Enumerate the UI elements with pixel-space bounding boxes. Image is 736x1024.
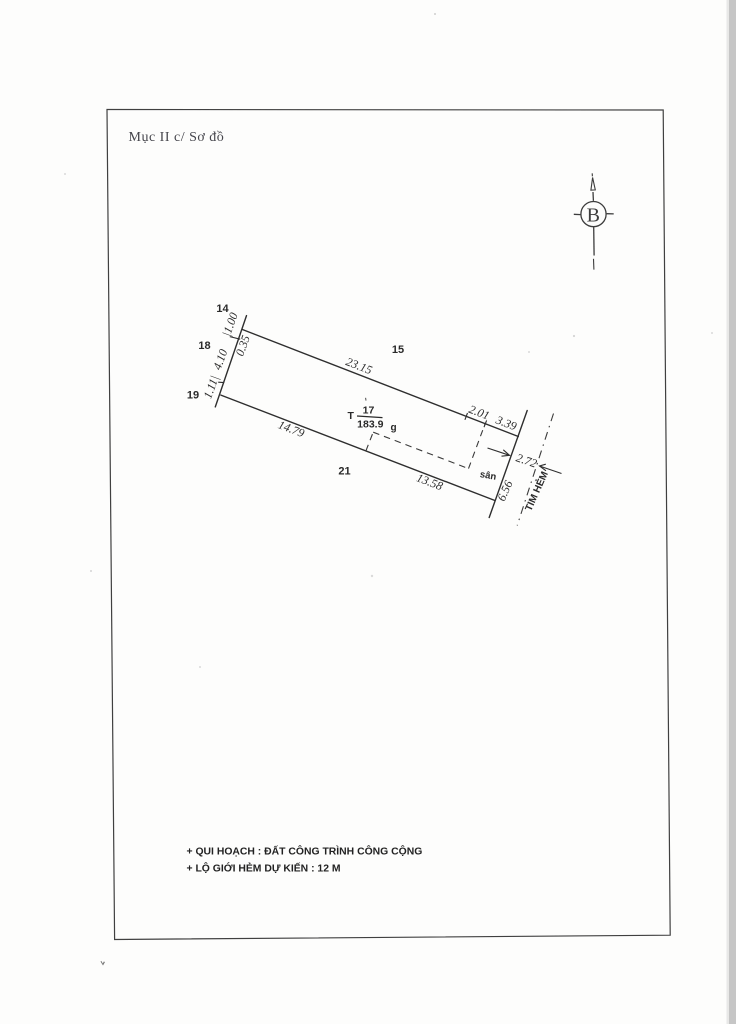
- svg-text:17: 17: [363, 405, 375, 417]
- svg-text:g: g: [391, 422, 397, 433]
- svg-text:B: B: [587, 205, 600, 227]
- svg-text:19: 19: [187, 389, 199, 401]
- svg-text:+ LỘ GIỚI HẺM DỰ KIẾN : 12 M: + LỘ GIỚI HẺM DỰ KIẾN : 12 M: [187, 862, 341, 875]
- svg-text:T: T: [348, 410, 355, 422]
- svg-text:18: 18: [198, 340, 210, 352]
- svg-text:183.9: 183.9: [357, 419, 383, 431]
- svg-text:+ QUI HOẠCH : ĐẤT CÔNG TRÌNH C: + QUI HOẠCH : ĐẤT CÔNG TRÌNH CÔNG CỘNG: [187, 845, 423, 858]
- svg-text:15: 15: [392, 344, 404, 356]
- svg-text:Mục II c/ Sơ đồ: Mục II c/ Sơ đồ: [129, 130, 225, 145]
- svg-text:21: 21: [338, 466, 350, 478]
